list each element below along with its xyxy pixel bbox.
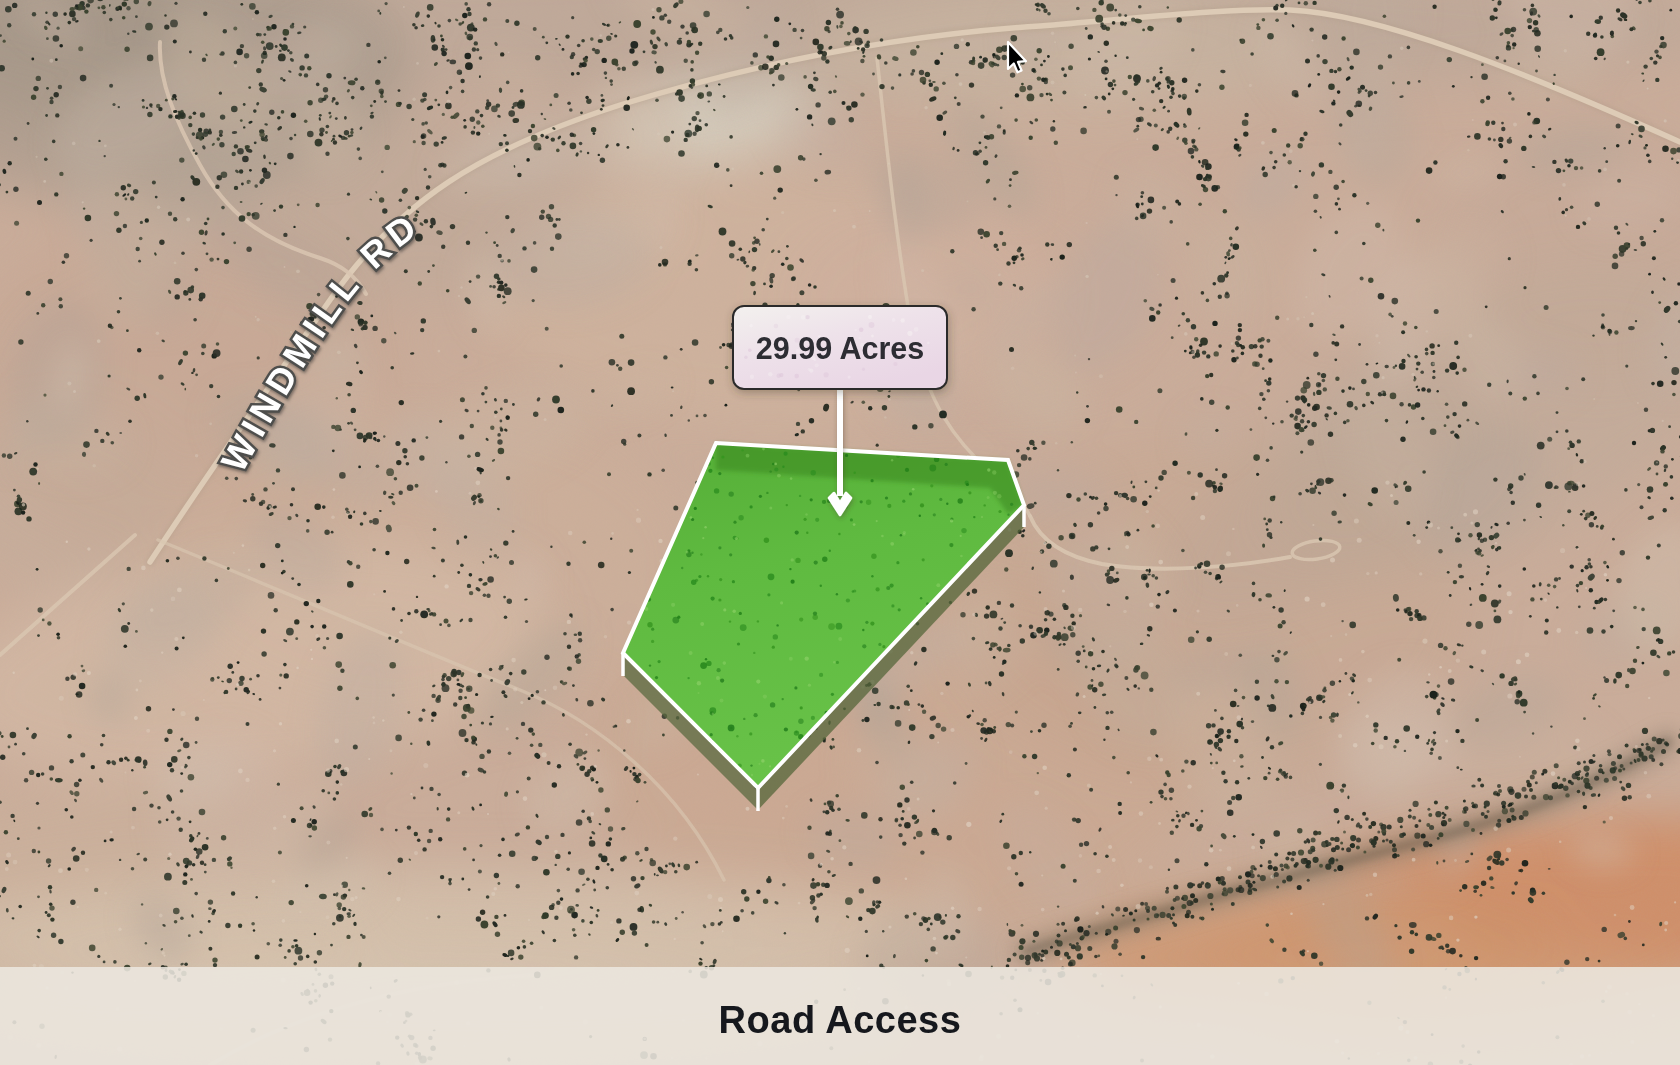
svg-text:Road Access: Road Access	[719, 999, 962, 1041]
svg-text:29.99 Acres: 29.99 Acres	[756, 331, 924, 365]
